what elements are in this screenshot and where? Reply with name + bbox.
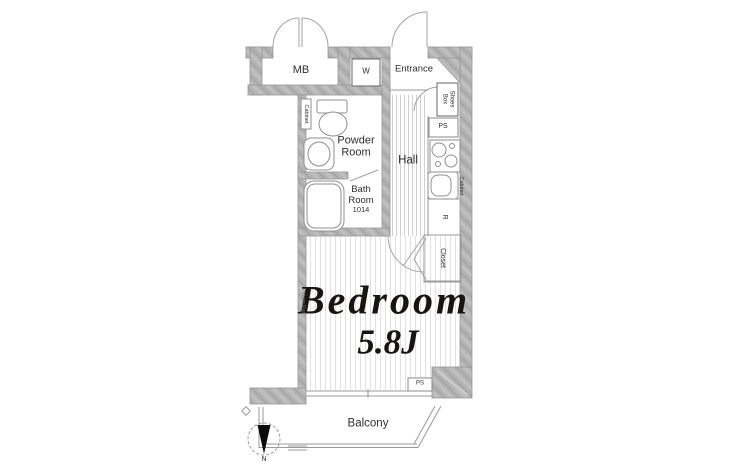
powder-sink — [304, 138, 334, 170]
bathtub — [304, 181, 344, 231]
kitchen-sink — [428, 172, 458, 199]
label-hall: Hall — [398, 155, 418, 168]
label-picture-rail: Picture Rail — [299, 288, 305, 314]
entrance-door — [392, 12, 427, 47]
balcony-outline — [242, 406, 441, 450]
bath-door — [350, 170, 378, 181]
label-bath-room: Bath Room 1014 — [348, 185, 373, 215]
label-ps-lower: PS — [416, 381, 424, 388]
compass — [248, 423, 280, 455]
floor-plan: MB W Entrance Shoes Box PS Cabinet R Clo… — [0, 0, 730, 470]
label-powder-room: Powder Room — [337, 135, 374, 160]
label-balcony: Balcony — [348, 418, 389, 431]
label-washer: W — [362, 68, 370, 77]
kitchen-stove — [430, 140, 460, 172]
label-powder-cabinet: Cabinet — [303, 105, 309, 124]
mb-double-doors — [273, 18, 328, 47]
label-shoes-box: Shoes Box — [441, 90, 454, 107]
label-ps-upper: PS — [438, 123, 447, 131]
label-entrance: Entrance — [395, 65, 433, 76]
label-refrigerator: R — [440, 214, 448, 219]
label-bedroom: Bedroom — [298, 279, 470, 324]
label-kitchen-cabinet: Cabinet — [458, 177, 464, 196]
toilet — [317, 100, 347, 136]
label-closet: Closet — [438, 248, 446, 268]
label-bedroom-size: 5.8J — [357, 322, 418, 361]
label-bath-module: 1014 — [348, 206, 373, 214]
label-north: N — [261, 456, 266, 464]
label-mb: MB — [293, 64, 310, 76]
